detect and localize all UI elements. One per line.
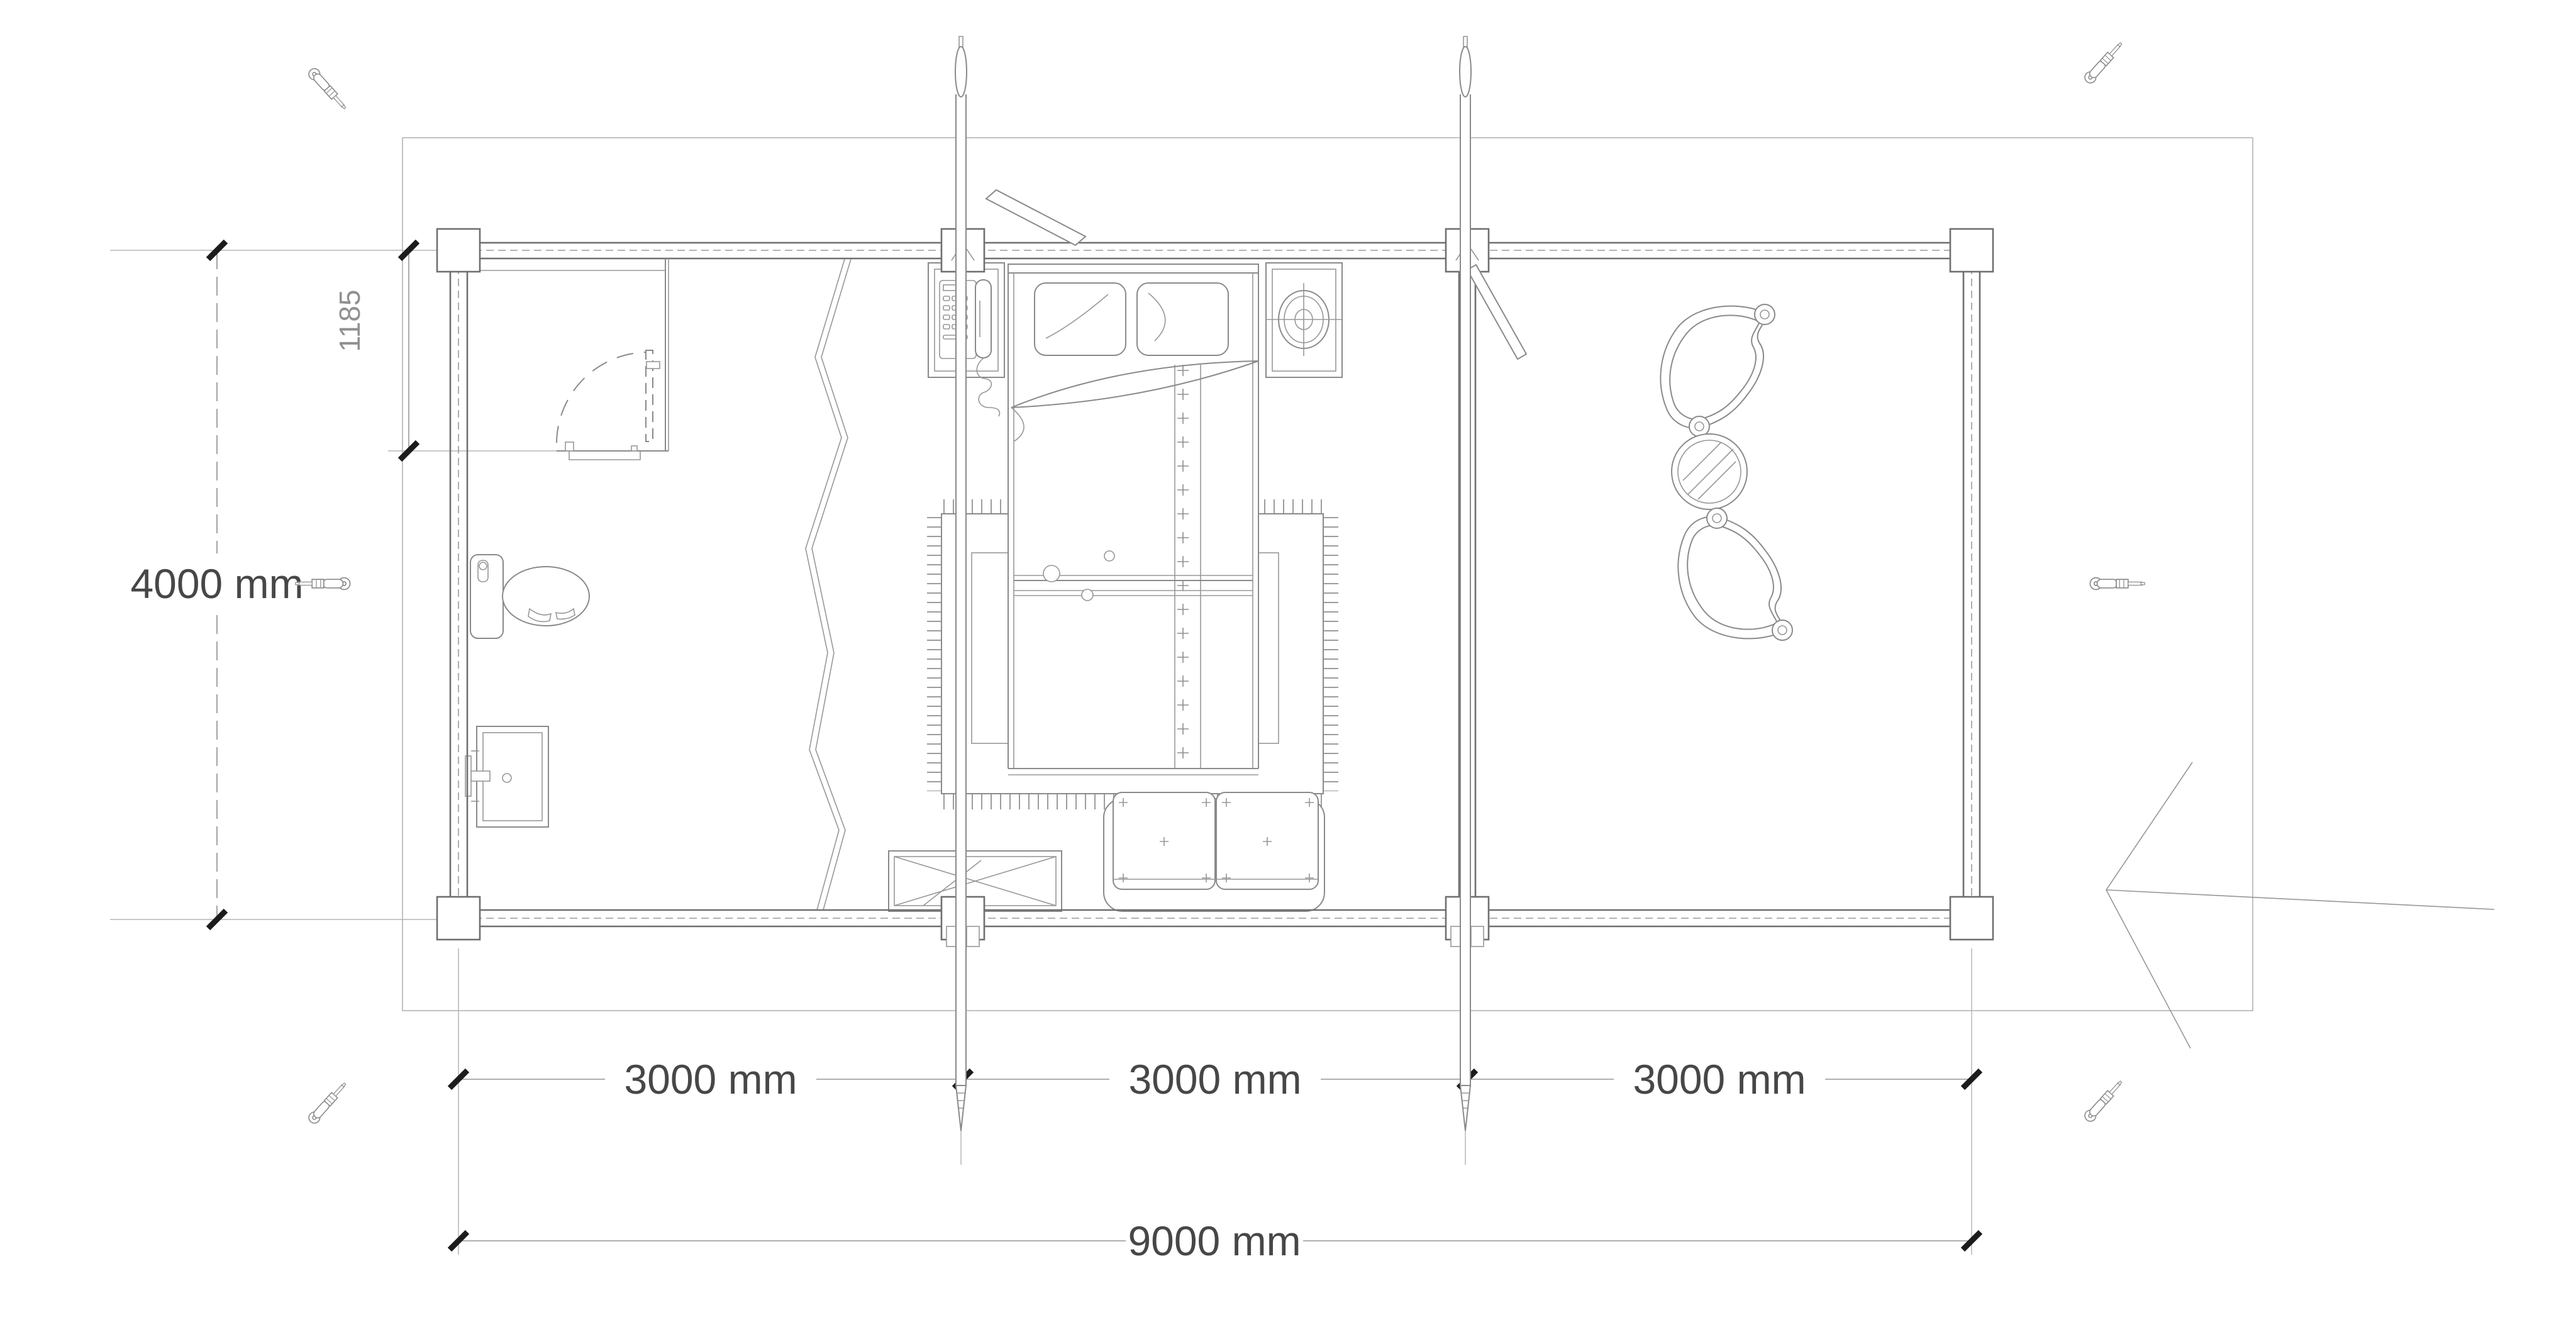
dimension-bays: 3000 mm 3000 mm 3000 mm [450,948,1980,1255]
screwdriver-icon-mid-left [296,578,350,590]
door-swing-arc [557,352,646,443]
bay-1-label: 3000 mm [624,1056,797,1102]
armrest-scroll [1755,304,1775,325]
entrance-arrow [2106,762,2494,1048]
door-wall-segment-label: 1185 [333,290,366,352]
dimension-overall-width: 9000 mm [450,1218,1980,1264]
rod-anchor-bracket [1471,926,1484,947]
faucet-spout [471,771,490,781]
overall-width-label: 9000 mm [1128,1218,1301,1264]
rod-head [955,47,967,97]
floor-plan-page: 4000 mm 1185 3000 mm 3000 mm 3000 mm [0,0,2576,1327]
threaded-rod-right [1460,36,1471,1165]
screwdriver-icon-mid-right [2090,578,2145,590]
telephone-handset [975,280,991,358]
screwdriver-icon-bottom-left [306,1080,349,1125]
two-seat-sofa [1104,792,1324,911]
terrace-armchair-top [1660,304,1775,436]
overall-height-label: 4000 mm [130,560,303,607]
toilet-icon [470,555,589,638]
screwdriver-icon-bottom-right [2082,1078,2125,1123]
door-hinge [647,362,660,369]
dimension-door-wall-segment: 1185 [333,242,560,460]
rod-head [1460,47,1471,97]
terrace-armchair-bottom [1678,508,1792,640]
pillow-left [1035,283,1126,355]
nightstand-right [1266,263,1342,377]
double-bed [1008,264,1258,775]
break-line [806,259,851,910]
telephone-icon [940,280,999,416]
dimension-overall-height: 4000 mm [110,242,450,928]
diagonal-brace-top [986,190,1085,245]
screwdriver-icon-top-right [2082,40,2125,85]
door-frame [569,451,640,460]
screwdriver-icon-top-left [306,67,349,112]
bathroom-partition [665,258,669,451]
threaded-rod-left [955,36,967,1165]
washbasin-icon [465,726,548,827]
rod-anchor-bracket [967,926,979,947]
floor-plan-canvas: 4000 mm 1185 3000 mm 3000 mm 3000 mm [0,0,2576,1327]
faucet-plate [465,756,471,796]
round-coffee-table [1672,434,1747,509]
pillow-right [1137,283,1228,355]
bay-2-label: 3000 mm [1128,1056,1301,1102]
interior-door [557,350,669,460]
bed-runner [1175,365,1201,769]
bay-3-label: 3000 mm [1633,1056,1806,1102]
